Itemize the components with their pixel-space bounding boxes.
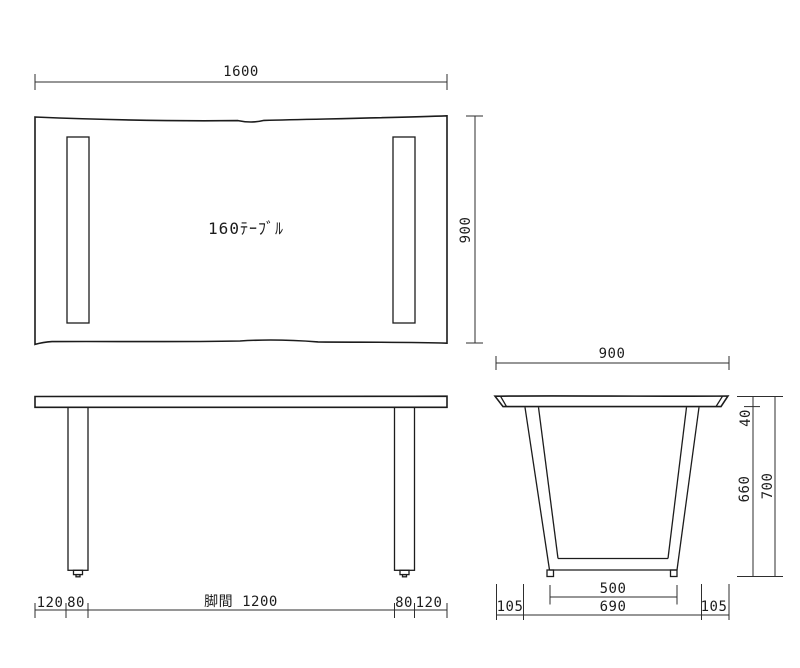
side-view-left-offset-text: 105 (497, 600, 524, 614)
front-view-right-leg (395, 407, 415, 570)
technical-drawing-svg (0, 0, 800, 668)
side-view-right-offset-text: 105 (701, 600, 728, 614)
top-view-width-dim-text: 1600 (223, 65, 259, 79)
front-view-right-overhang-text: 120 (416, 596, 443, 610)
front-view-left-leg-width-text: 80 (67, 596, 85, 610)
side-view-top-thickness-text: 40 (739, 409, 753, 427)
top-view-left-leg (67, 137, 89, 323)
front-view-left-overhang-text: 120 (37, 596, 64, 610)
side-view-total-height-text: 700 (761, 473, 775, 500)
side-view-leg-height-text: 660 (738, 476, 752, 503)
front-view-left-foot (74, 570, 83, 577)
front-view-right-leg-width-text: 80 (395, 596, 413, 610)
side-view-top-width-text: 900 (599, 347, 626, 361)
side-view-right-foot (671, 570, 678, 577)
front-view-left-leg (68, 407, 88, 570)
table-dimension-drawing: 1600 900 160ﾃｰﾌﾞﾙ 120 80 脚間 1200 80 120 … (0, 0, 800, 668)
top-view-product-label: 160ﾃｰﾌﾞﾙ (208, 221, 284, 237)
top-view-depth-dim-text: 900 (459, 217, 473, 244)
front-view (35, 396, 447, 618)
front-view-leg-span-text: 脚間 1200 (204, 595, 278, 609)
side-view-base-inner-width-text: 500 (600, 582, 627, 596)
side-view-base-outer-width-text: 690 (600, 600, 627, 614)
top-view (35, 74, 483, 344)
side-view-tabletop (495, 396, 728, 407)
front-view-tabletop (35, 396, 447, 407)
front-view-right-foot (400, 570, 409, 577)
side-view-leg-frame (525, 407, 699, 570)
top-view-right-leg (393, 137, 415, 323)
side-view-left-foot (547, 570, 554, 577)
